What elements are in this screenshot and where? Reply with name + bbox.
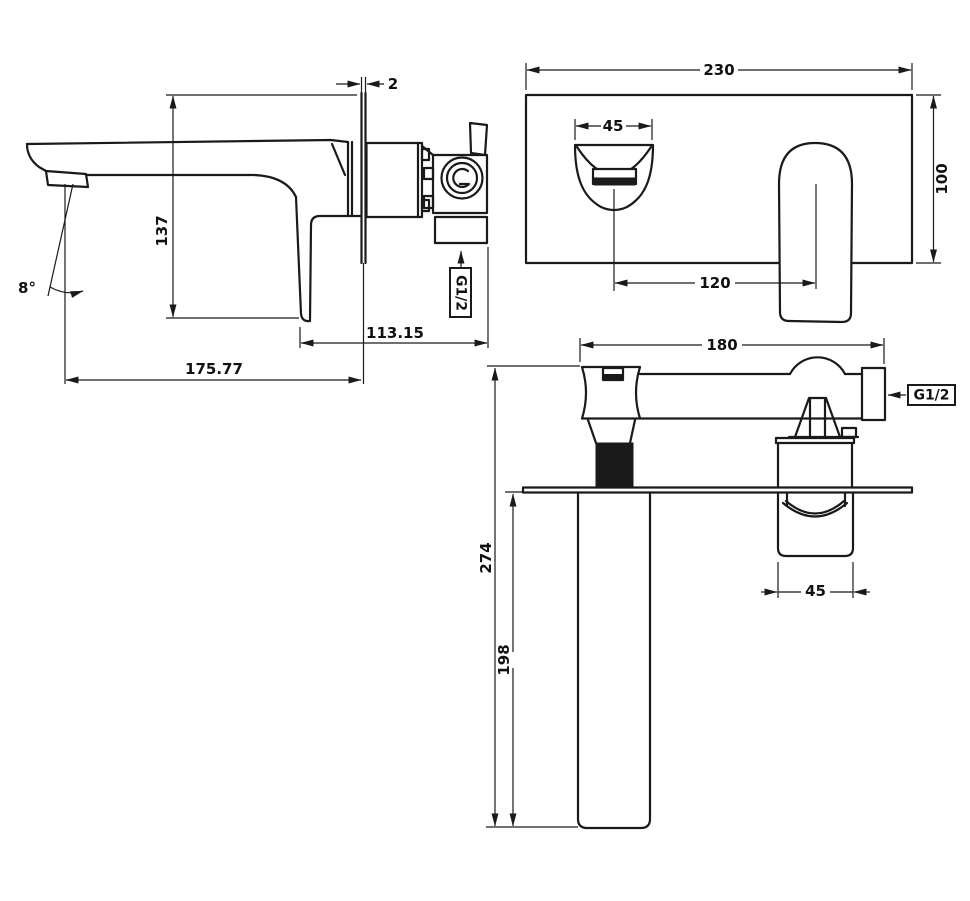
wall-plate-edge	[523, 488, 912, 493]
angle-stream-line	[48, 184, 73, 296]
dim-height: 137	[153, 215, 171, 246]
inlet-port-slot	[453, 169, 469, 187]
side-view: 2 137 8° 113.15 175.77 G1/2	[18, 75, 488, 384]
inlet-elbow	[470, 123, 487, 155]
union-rib-top	[424, 168, 433, 179]
handle-upper-sides	[778, 443, 852, 487]
dim-plate-height: 100	[933, 163, 951, 194]
dim-body-width: 180	[706, 336, 737, 354]
body-tube	[640, 374, 862, 419]
handle-flange	[776, 438, 854, 443]
dim-plate-width: 230	[703, 61, 734, 79]
spout-beak-curve	[27, 144, 46, 171]
dim137-ext-lines	[166, 95, 357, 318]
spout-neck	[588, 420, 635, 443]
spout-outlet-slot	[595, 178, 635, 185]
spout-top-edge	[27, 140, 348, 144]
angle-arc	[50, 287, 83, 293]
dim-centre-distance: 120	[699, 274, 730, 292]
spout-tube-plan	[578, 493, 650, 828]
dim-outlet-width: 45	[603, 117, 624, 135]
dim-depth-behind-wall: 113.15	[366, 324, 424, 342]
inlet-connector	[862, 368, 885, 420]
technical-drawing: 2 137 8° 113.15 175.77 G1/2	[0, 0, 970, 901]
thread-label-top: G1/2	[913, 388, 949, 404]
spout-underside	[86, 175, 296, 197]
dim2-ext-lines	[362, 77, 366, 92]
top-view: G1/2 180 274 198 45	[477, 336, 955, 828]
dim-spout-reach: 175.77	[185, 360, 243, 378]
dim-overall-depth: 274	[477, 542, 495, 573]
threaded-shank	[596, 443, 633, 489]
cartridge-step	[842, 428, 856, 437]
front-view: 230 45 100 120	[526, 61, 951, 322]
dim-wall-thickness: 2	[388, 75, 398, 93]
dim-spout-projection: 198	[495, 644, 513, 675]
thread-label-side: G1/2	[453, 275, 469, 311]
aerator-tip	[46, 171, 88, 187]
inlet-port-inner	[447, 163, 477, 193]
body-union-joint	[422, 146, 433, 155]
dim-spout-angle: 8°	[18, 279, 36, 297]
dim-handle-width: 45	[805, 582, 826, 600]
blueprint-canvas: 2 137 8° 113.15 175.77 G1/2	[0, 0, 970, 901]
handle-back-slope	[332, 144, 345, 175]
valve-bulge-arc	[790, 357, 845, 374]
concealed-valve-body	[367, 143, 423, 217]
spout-block-notch-slot	[604, 375, 622, 380]
mounting-bracket	[435, 217, 487, 243]
